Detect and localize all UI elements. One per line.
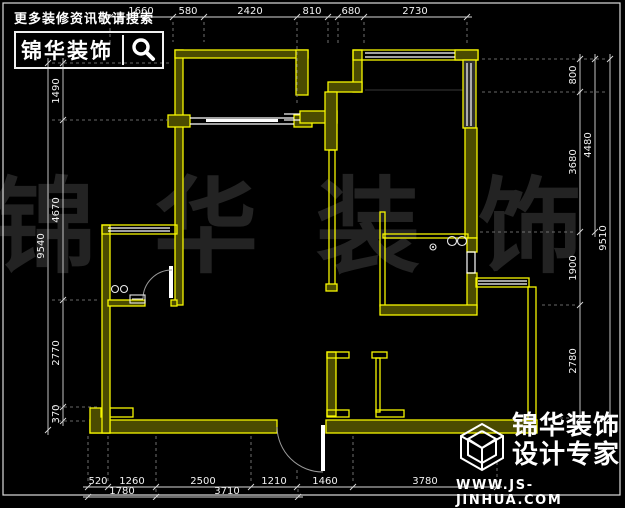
company-logo: 锦华装饰 设计专家 WWW.JS-JINHUA.COM bbox=[456, 412, 624, 508]
dimension-label: 810 bbox=[302, 6, 321, 17]
wall-balcony-top bbox=[175, 50, 308, 58]
floor-plan-walls bbox=[90, 50, 537, 433]
wall-nook-horizontal bbox=[328, 82, 362, 92]
wall-right-above-door bbox=[467, 238, 477, 252]
floorplan-image: 锦华装饰 bbox=[0, 0, 625, 500]
dimension-chain-right-middle: 4480 bbox=[583, 54, 598, 237]
header-branding: 更多装修资讯敬请搜索 锦华装饰 bbox=[14, 8, 164, 69]
dimension-label: 1490 bbox=[51, 78, 62, 103]
dimension-chain-top-2: 6802730 bbox=[333, 6, 472, 20]
doors bbox=[143, 252, 475, 472]
wall-left-long bbox=[175, 50, 183, 305]
dimension-label: 2420 bbox=[237, 6, 262, 17]
wall-bath1-bottom-stub bbox=[171, 300, 177, 306]
dimension-label: 1900 bbox=[568, 255, 579, 280]
dimension-label: 2780 bbox=[568, 348, 579, 373]
floorplan-screenshot: { "header": { "promo_text": "更多装修资讯敬请搜索"… bbox=[0, 0, 625, 500]
dimension-label: 9540 bbox=[36, 233, 47, 258]
dimension-label: 2500 bbox=[190, 476, 215, 487]
logo-tagline: 设计专家 bbox=[512, 441, 620, 470]
promo-text: 更多装修资讯敬请搜索 bbox=[14, 8, 164, 27]
dimension-label: 2730 bbox=[402, 6, 427, 17]
brand-search-box: 锦华装饰 bbox=[14, 31, 164, 69]
wall-center-thin bbox=[329, 150, 335, 286]
bath1-sink bbox=[112, 286, 119, 293]
wall-bath1-top bbox=[102, 225, 177, 234]
wall-bath2-left bbox=[380, 212, 385, 306]
dimension-label: 3680 bbox=[568, 149, 579, 174]
entrance-door-arc bbox=[277, 427, 323, 472]
dimension-label: 370 bbox=[51, 404, 62, 423]
balcony-window-sash bbox=[206, 119, 278, 122]
toilet-dot bbox=[432, 246, 434, 248]
bath1-door-arc bbox=[143, 270, 172, 299]
wall-east-top bbox=[476, 278, 529, 287]
dimension-label: 2770 bbox=[51, 340, 62, 365]
dimension-label: 4480 bbox=[583, 132, 594, 157]
brand-name: 锦华装饰 bbox=[16, 35, 122, 65]
wall-east-right bbox=[528, 287, 536, 423]
window-pier-left bbox=[168, 115, 190, 127]
dimension-chain-left-inner: 149046702770370 bbox=[51, 58, 66, 426]
dimension-label: 1460 bbox=[312, 476, 337, 487]
cube-logo-icon bbox=[456, 420, 508, 476]
dimension-chain-left-outer: 9540 bbox=[36, 58, 51, 435]
dimension-label: 9510 bbox=[598, 225, 609, 250]
dimension-label: 520 bbox=[88, 476, 107, 487]
entrance-door-leaf bbox=[321, 425, 325, 471]
dimension-label: 3710 bbox=[214, 486, 239, 497]
wall-bottom-left bbox=[90, 420, 277, 433]
logo-text: 锦华装饰 设计专家 bbox=[512, 412, 620, 470]
website-url: WWW.JS-JINHUA.COM bbox=[456, 478, 624, 508]
wall-bath2-bottom bbox=[380, 305, 477, 315]
dimension-chain-right-outer: 9510 bbox=[598, 54, 613, 423]
wall-top-corner bbox=[455, 50, 478, 60]
wall-right-mid bbox=[465, 128, 477, 238]
wall-center-thick bbox=[325, 92, 337, 150]
dimension-label: 1780 bbox=[109, 486, 134, 497]
dimension-chain-right-inner: 800368019002780 bbox=[568, 54, 583, 423]
wall-stub-b bbox=[376, 358, 380, 412]
dimension-chain-bottom-1: 52012602500121014603780 bbox=[83, 476, 502, 490]
dimension-label: 1210 bbox=[261, 476, 286, 487]
fixtures bbox=[112, 237, 467, 304]
wall-left-outer bbox=[102, 225, 110, 433]
logo-brand: 锦华装饰 bbox=[512, 412, 620, 441]
wall-center-foot bbox=[326, 284, 337, 291]
wall-stub-a bbox=[327, 352, 336, 416]
wall-stub-b-cap bbox=[372, 352, 387, 358]
dimension-label: 580 bbox=[178, 6, 197, 17]
bath1-door-leaf bbox=[169, 266, 173, 298]
wall-balcony-right bbox=[296, 50, 308, 95]
dimension-label: 680 bbox=[341, 6, 360, 17]
bath2-pocket-door bbox=[467, 252, 475, 273]
wall-right-window-bay bbox=[463, 60, 476, 128]
dimension-label: 800 bbox=[568, 65, 579, 84]
magnifier-icon bbox=[124, 36, 162, 64]
dimension-label: 4670 bbox=[51, 197, 62, 222]
dimension-label: 3780 bbox=[412, 476, 437, 487]
dimension-chain-bottom-2: 17803710 bbox=[83, 486, 303, 500]
bath1-sink bbox=[121, 286, 128, 293]
